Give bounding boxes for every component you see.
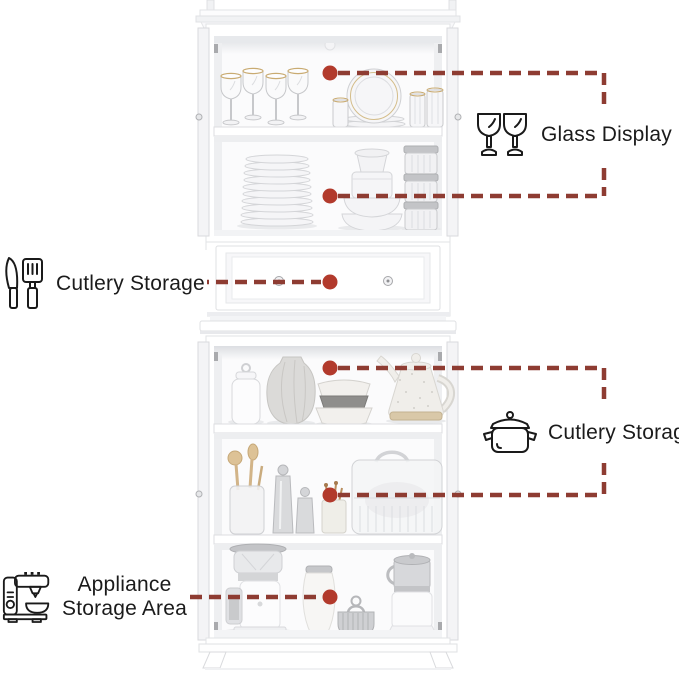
- callout-dot-drawer: [323, 275, 338, 290]
- callout-cutlery-storage-right: Cutlery Storage: [480, 404, 679, 462]
- callout-glass-display-label: Glass Display: [541, 123, 672, 147]
- stand-mixer-icon: [2, 568, 52, 626]
- callout-dot-shelf-bottom: [323, 488, 338, 503]
- knife-spatula-icon: [4, 256, 46, 312]
- product-infographic: Glass Display Cutlery Storage: [0, 0, 679, 678]
- wine-glasses-icon: [476, 112, 528, 158]
- callout-appliance-line2: Storage Area: [62, 597, 187, 621]
- callout-cutlery-storage-left: Cutlery Storage: [2, 250, 207, 318]
- callout-appliance-storage-label: Appliance Storage Area: [62, 573, 187, 621]
- callout-dot-glass-top: [323, 66, 338, 81]
- callout-appliance-line1: Appliance: [62, 573, 187, 597]
- callout-cutlery-storage-left-label: Cutlery Storage: [56, 272, 205, 296]
- cooking-pot-icon: [482, 410, 538, 456]
- callout-dot-glass-bottom: [323, 189, 338, 204]
- callout-dot-appliance: [323, 590, 338, 605]
- callout-cutlery-storage-right-label: Cutlery Storage: [548, 421, 679, 445]
- callout-dot-shelf-top: [323, 361, 338, 376]
- callout-appliance-storage: Appliance Storage Area: [0, 562, 189, 632]
- callout-glass-display: Glass Display: [474, 106, 674, 164]
